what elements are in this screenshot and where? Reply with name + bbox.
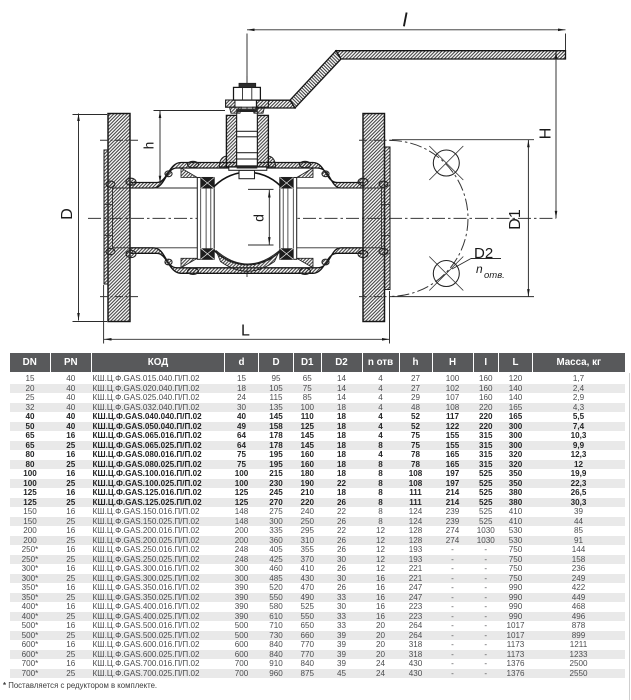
svg-text:L: L xyxy=(241,323,250,340)
svg-text:n: n xyxy=(476,262,483,276)
svg-text:h: h xyxy=(142,142,157,150)
svg-text:D2: D2 xyxy=(474,245,493,262)
svg-text:отв.: отв. xyxy=(484,270,505,281)
svg-text:D1: D1 xyxy=(507,209,524,230)
svg-text:d: d xyxy=(251,214,267,222)
svg-text:H: H xyxy=(538,128,555,140)
svg-text:D: D xyxy=(59,208,76,220)
